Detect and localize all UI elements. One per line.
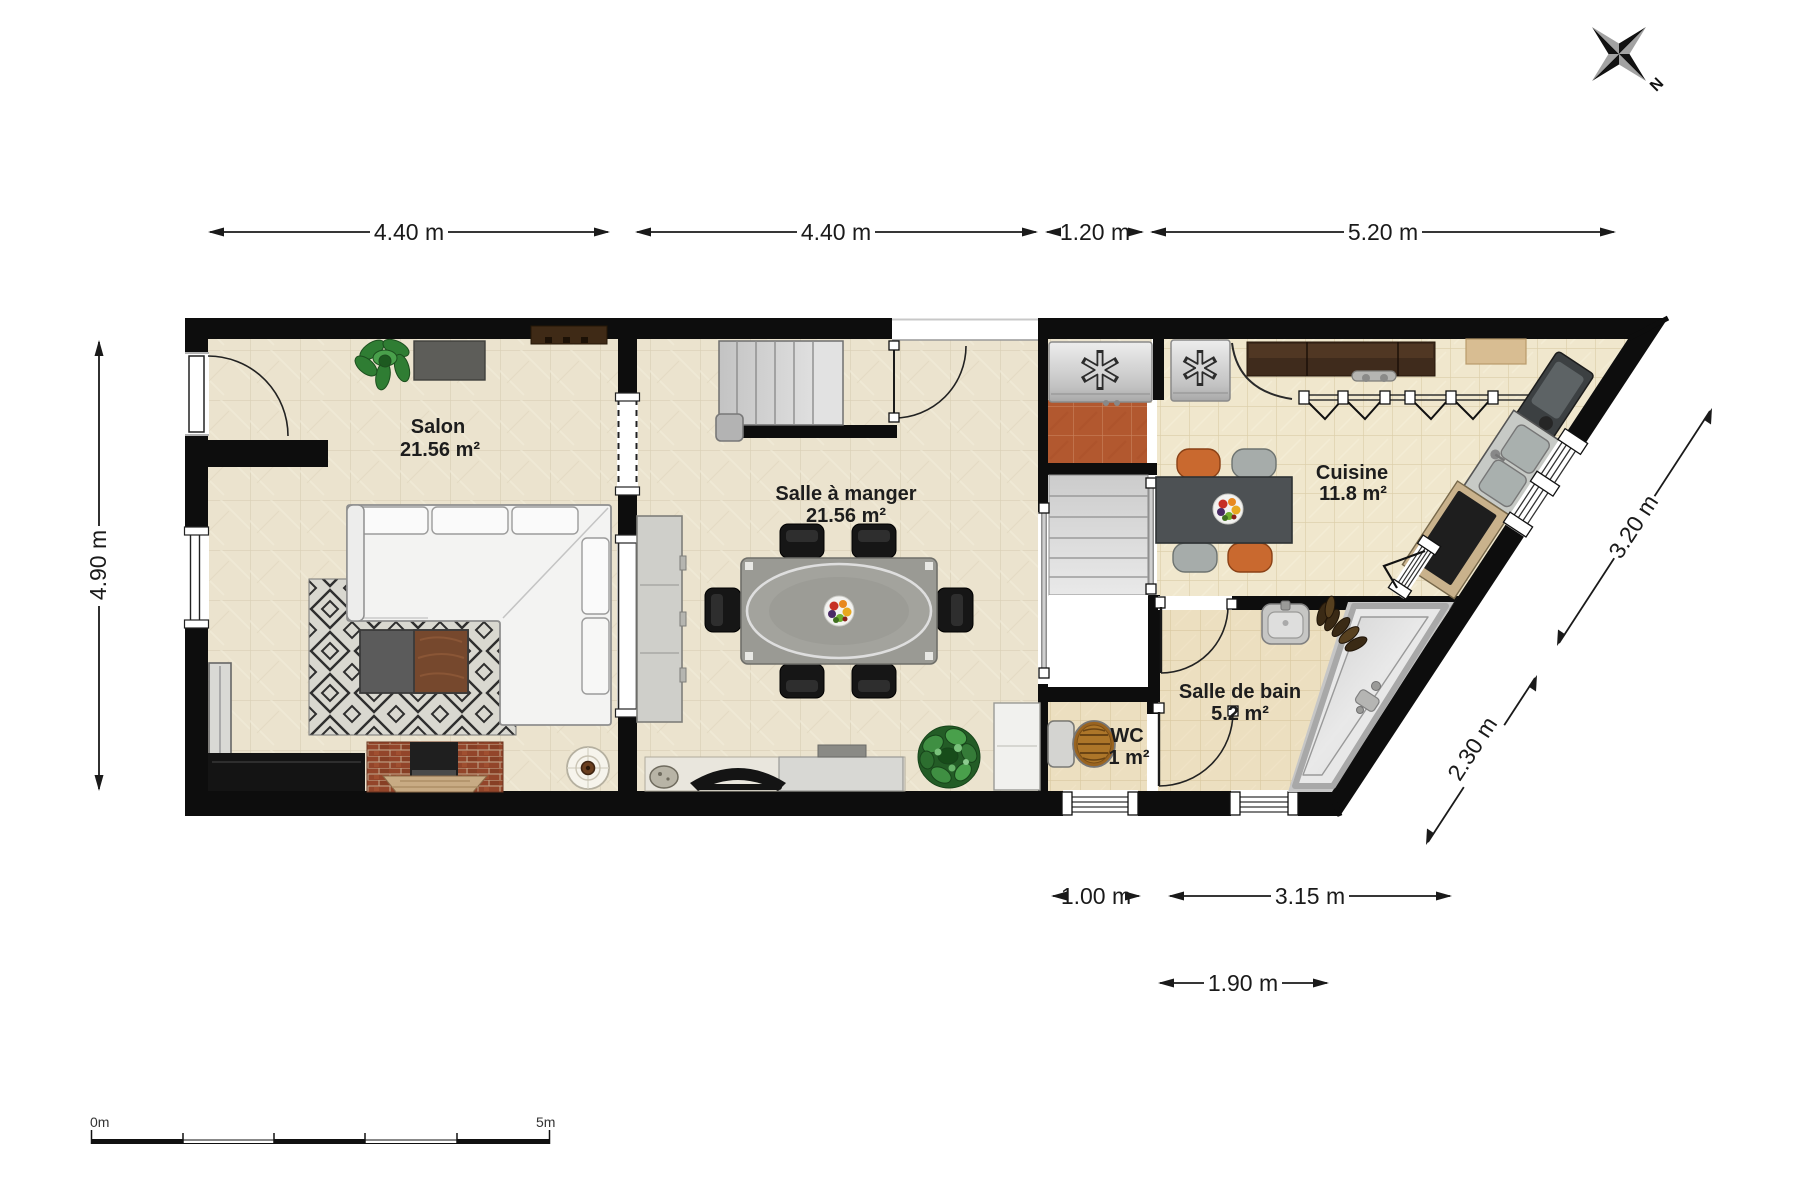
svg-text:5.20 m: 5.20 m (1348, 219, 1418, 245)
svg-text:1.20 m: 1.20 m (1060, 219, 1130, 245)
svg-text:3.15 m: 3.15 m (1275, 883, 1345, 909)
svg-text:Salle de bain: Salle de bain (1179, 681, 1301, 703)
svg-text:21.56 m²: 21.56 m² (400, 439, 480, 461)
svg-text:4.40 m: 4.40 m (801, 219, 871, 245)
svg-text:1.90 m: 1.90 m (1208, 970, 1278, 996)
svg-text:4.40 m: 4.40 m (374, 219, 444, 245)
svg-text:5.2 m²: 5.2 m² (1211, 703, 1269, 725)
svg-text:Salle à manger: Salle à manger (775, 483, 916, 505)
svg-text:WC: WC (1110, 725, 1143, 747)
svg-text:Cuisine: Cuisine (1316, 462, 1388, 484)
svg-text:0m: 0m (90, 1114, 109, 1130)
svg-text:Salon: Salon (411, 416, 465, 438)
svg-text:5m: 5m (536, 1114, 555, 1130)
svg-text:1.00 m: 1.00 m (1061, 883, 1131, 909)
svg-text:11.8 m²: 11.8 m² (1319, 483, 1387, 505)
svg-text:4.90 m: 4.90 m (85, 530, 111, 600)
svg-text:21.56 m²: 21.56 m² (806, 505, 886, 527)
svg-text:1 m²: 1 m² (1108, 747, 1149, 769)
